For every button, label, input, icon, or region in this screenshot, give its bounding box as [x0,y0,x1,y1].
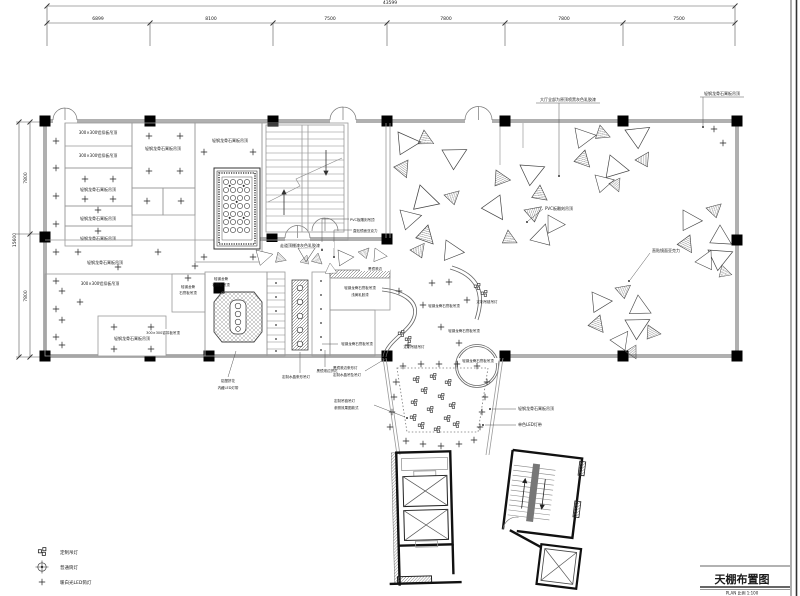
ceiling-label: 轻钢龙骨石膏板吊顶 [80,215,116,221]
ceiling-label: 轻钢龙骨石膏板吊顶 [114,335,150,341]
dim-seg: 7800 [23,290,29,302]
ceiling-label: 轻钢龙骨石膏板吊顶 [341,341,373,346]
ceiling-label: 轻钢龙骨石膏板吊顶 [344,285,376,290]
pvc-triangle-cluster-east [676,200,736,282]
drawing-title: 天棚布置图 [715,572,770,586]
pvc-triangle-cluster-north [572,122,656,193]
stair-core [497,450,592,589]
entrance-lobby [383,358,503,455]
pendant-cluster-symbol [38,548,46,556]
corridor-cells [267,272,285,356]
acrylic-label: 直贴镜面亚克力 [652,247,680,253]
ceiling-plan-sheet: 天棚布置图 PLAN 比例 1:100 43599 6899 8100 7500… [0,0,800,596]
dim-seg: 7800 [23,172,29,184]
dim-seg: 7800 [440,16,452,22]
crystal-pendant-field [410,373,459,432]
ceiling-label: 轻钢龙骨石膏板吊顶 [87,259,123,265]
dim-seg: 8100 [205,16,217,22]
legend-label: 暖白光LED筒灯 [60,579,92,586]
title-block: 天棚布置图 PLAN 比例 1:100 [700,566,790,596]
ceiling-label: 轻钢龙骨石膏板吊顶 [462,358,494,363]
ceiling-label: 轻钢龙骨 [214,276,228,281]
hall-ceiling-note: 大厅全部为原顶喷黑灰色乳胶漆 [540,96,596,102]
dim-seg: 7500 [324,16,336,22]
light-note: 参照效果图款式 [334,405,359,410]
top-dimension-chain: 43599 6899 8100 7500 7800 7800 7500 [45,0,738,46]
ceiling-label: 轻钢龙骨石膏板吊顶 [212,137,248,143]
dim-seg: 7800 [558,16,570,22]
ceiling-label: 轻钢龙骨 [181,284,195,289]
dim-seg: 7500 [673,16,685,22]
rect-medallion-ceiling [214,168,260,249]
ceiling-label: 轻钢龙骨石膏板吊顶 [704,90,740,96]
ceiling-label: 轻钢龙骨石膏板吊顶 [448,328,480,333]
elevator-core [386,451,461,586]
ceiling-label: 300×300铝扣板吊顶 [81,280,120,286]
dim-seg: 6899 [92,16,104,22]
light-label: 定制吊链吊灯 [477,299,498,304]
pvc-triangle-cluster-west [393,130,471,266]
legend-label: 定制吊灯 [60,549,78,556]
pvc-triangle-cluster-southeast [586,282,662,361]
ceiling-label: 轻钢龙骨石膏板吊顶 [80,186,116,192]
ceiling-label: 300×300铝扣板吊顶 [79,152,118,158]
light-label: 黑镜滚边条形灯 [333,365,358,370]
ceiling-label: 300×300铝扣板吊顶 [146,330,180,335]
crosshair-downlight-symbol [36,561,49,574]
ceiling-label: 300×300铝扣板吊顶 [79,129,118,135]
annotations: 大厅全部为原顶喷黑灰色乳胶漆 轻钢龙骨石膏板吊顶 PVC板雕刻吊顶 直贴镜面亚克… [218,90,744,427]
feature-label: 铝塑拼花 [221,378,235,383]
entry-door-arcs [53,107,523,239]
sheet-border [791,0,797,596]
ceiling-label: 石膏板吊顶 [212,282,230,287]
feature-label: 内藏LED灯带 [218,385,239,390]
legend: 定制吊灯 普通筒灯 暖白光LED筒灯 [36,548,92,586]
pvc-label: PVC板雕刻吊顶 [350,217,375,222]
plus-spotlight-symbol [39,579,45,585]
light-label: 定制吊链吊灯 [334,398,355,403]
ceiling-label: 黑镜滚边 [368,266,382,271]
led-label: 单色LED灯带 [518,421,542,427]
light-label: 定制水晶条形吊灯 [282,374,310,379]
light-label: 定制水晶吊坠吊灯 [333,372,361,377]
dim-total-top: 43599 [383,0,397,6]
stair-top [262,123,348,240]
legend-label: 普通筒灯 [60,564,78,571]
drawing-scale: PLAN 比例 1:100 [726,590,759,596]
crystal-strip-feature [292,280,308,350]
corridor-note: 走道顶棚漆灰色乳胶漆 [280,242,320,248]
ceiling-label: 浅黄乳胶漆 [351,292,369,297]
ceiling-label: 石膏板吊顶 [179,290,197,295]
dim-total-left: 15600 [12,233,18,247]
ceiling-label: 轻钢龙骨石膏板吊顶 [145,145,181,151]
octagon-medallion-ceiling: 轻钢龙骨 石膏板吊顶 [205,272,267,356]
ceiling-label: 轻钢龙骨石膏板吊顶 [518,405,554,411]
acrylic-label: 直贴镜面亚克力 [353,228,378,233]
ceiling-label: 轻钢龙骨石膏板吊顶 [428,303,460,308]
pvc-label: PVC板雕刻吊顶 [545,205,573,211]
